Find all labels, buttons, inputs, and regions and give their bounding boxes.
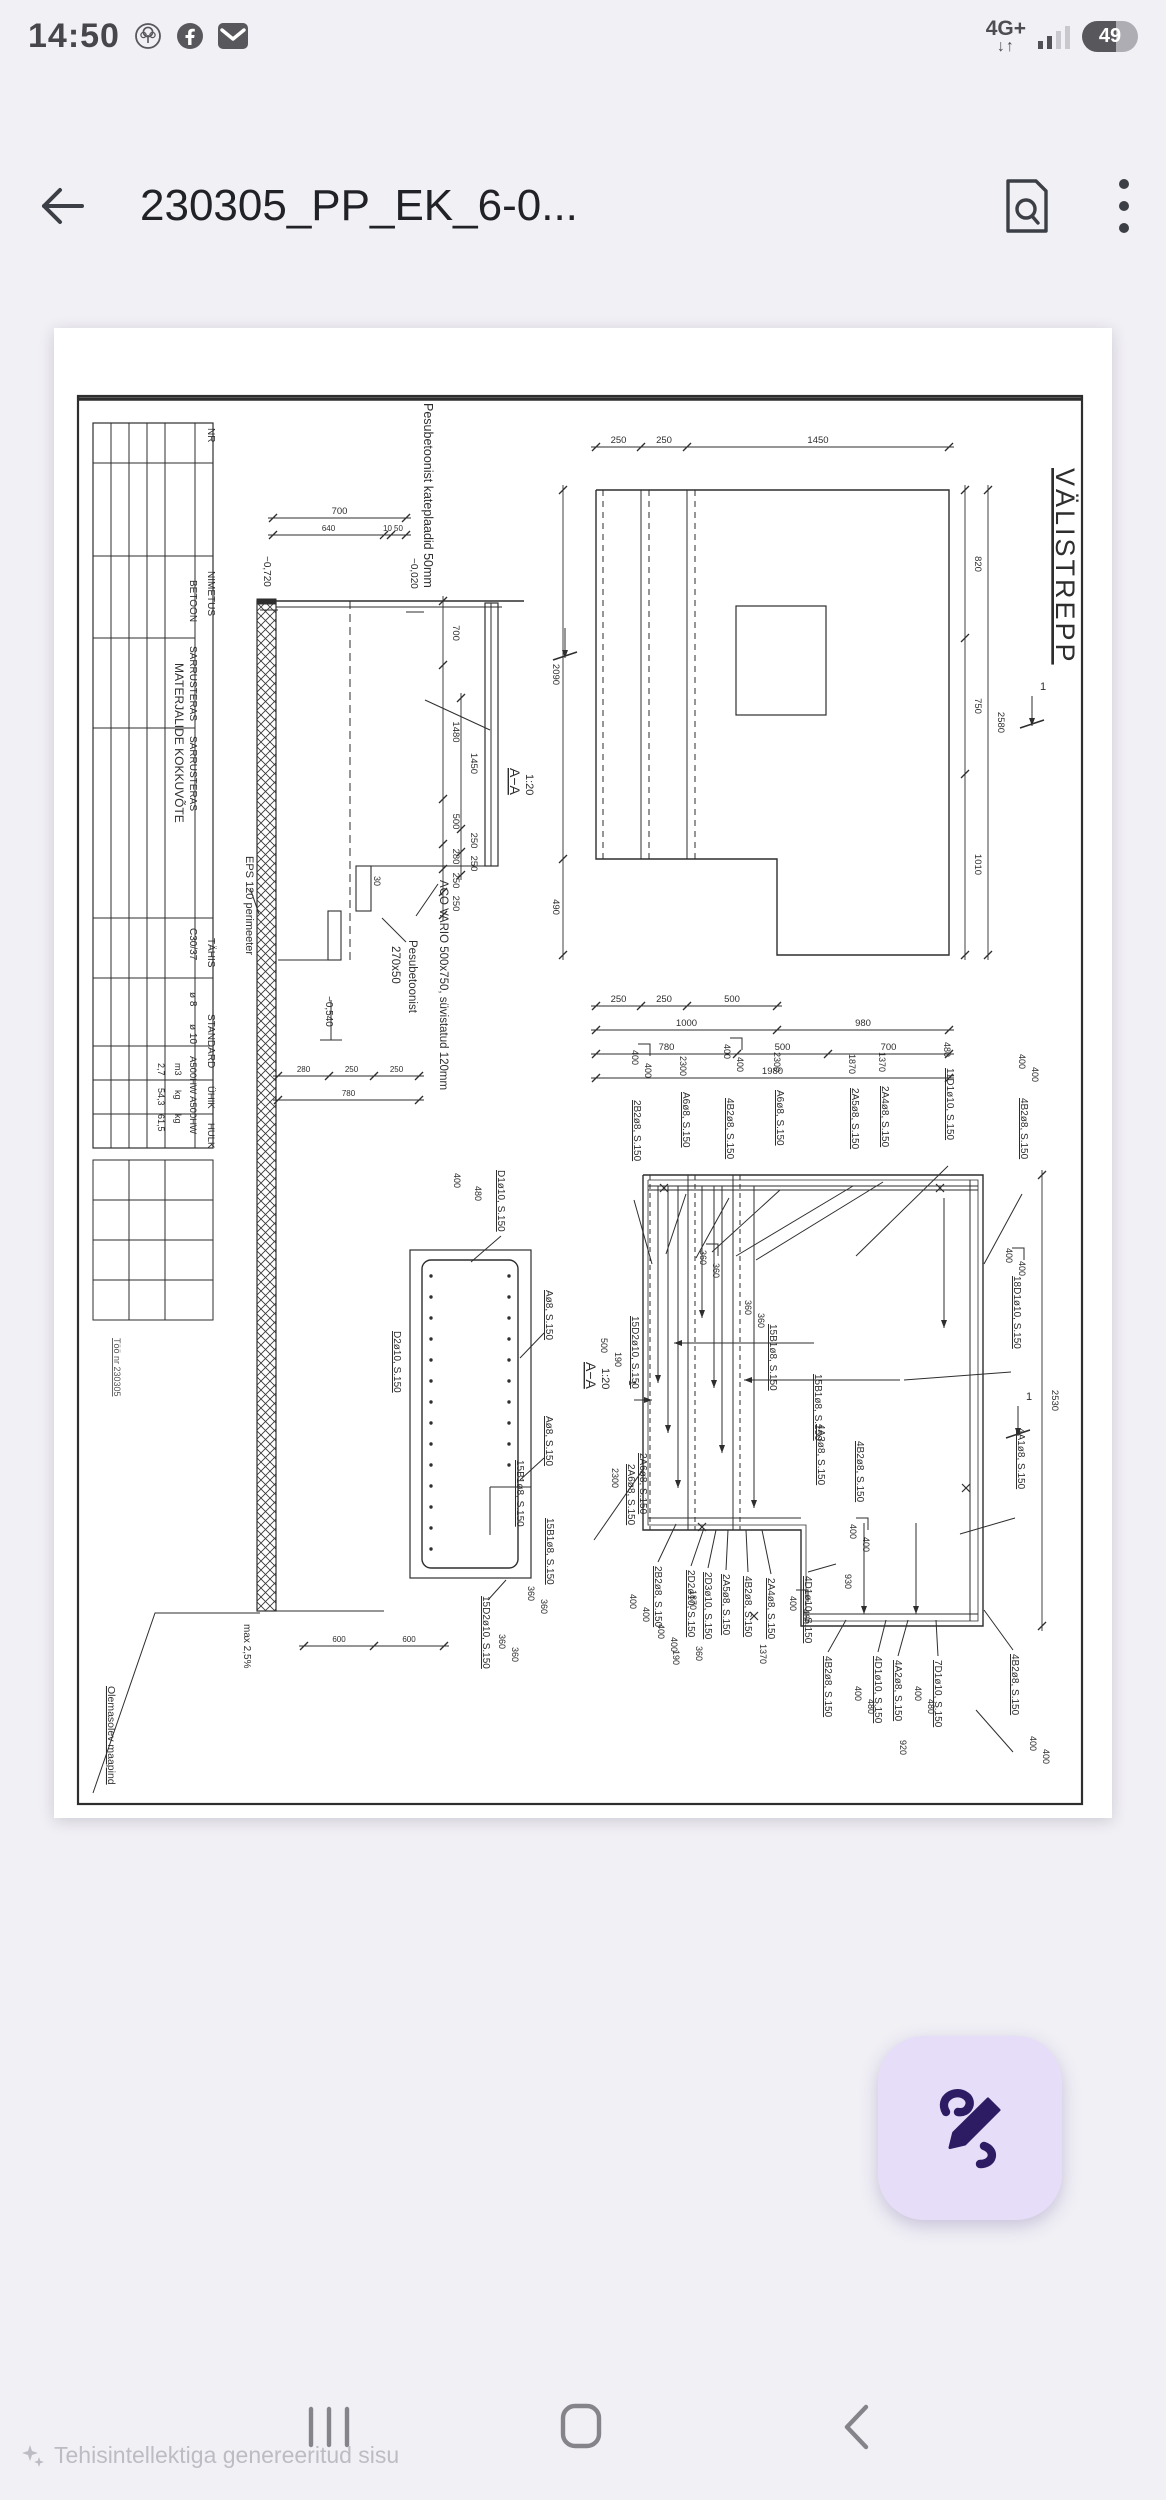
svg-text:190: 190	[671, 1650, 681, 1665]
svg-text:1370: 1370	[877, 1052, 887, 1072]
svg-text:400: 400	[641, 1607, 651, 1622]
svg-text:−0,720: −0,720	[261, 556, 272, 587]
svg-text:D1ø10, S.150: D1ø10, S.150	[495, 1170, 506, 1232]
drawing-sheet: 2502501450250250500100098078050070019808…	[54, 328, 1112, 1818]
svg-text:360: 360	[698, 1250, 708, 1265]
svg-text:270x50: 270x50	[389, 946, 401, 984]
svg-text:A500HW: A500HW	[187, 1096, 198, 1134]
svg-text:400: 400	[913, 1686, 923, 1701]
ai-edit-fab[interactable]	[878, 2036, 1062, 2220]
svg-text:250: 250	[611, 994, 627, 1005]
svg-text:780: 780	[659, 1042, 675, 1053]
svg-text:1:20: 1:20	[523, 774, 535, 795]
svg-text:780: 780	[342, 1089, 356, 1098]
svg-text:750: 750	[972, 698, 983, 714]
svg-text:190: 190	[613, 1352, 623, 1367]
status-bar: 14:50 4G+ ↓↑ 49	[0, 0, 1166, 72]
battery-indicator: 49	[1082, 21, 1138, 52]
svg-text:360: 360	[711, 1263, 721, 1278]
svg-text:7D1ø10, S.150: 7D1ø10, S.150	[932, 1660, 943, 1728]
svg-text:2B2ø8, S.150: 2B2ø8, S.150	[631, 1100, 642, 1162]
svg-text:61,5: 61,5	[156, 1114, 166, 1132]
svg-text:700: 700	[450, 625, 461, 641]
svg-text:−0,020: −0,020	[408, 558, 419, 589]
svg-text:NR: NR	[205, 428, 216, 442]
facebook-icon	[176, 22, 204, 50]
svg-text:Aø8, S.150: Aø8, S.150	[543, 1290, 554, 1340]
svg-text:250: 250	[656, 994, 672, 1005]
status-time: 14:50	[28, 17, 120, 56]
svg-text:2D3ø10, S.150: 2D3ø10, S.150	[702, 1572, 713, 1640]
svg-text:500: 500	[450, 814, 461, 830]
svg-text:280: 280	[450, 849, 461, 865]
gmail-icon	[218, 23, 248, 49]
svg-text:SARRUSTERAS: SARRUSTERAS	[187, 646, 198, 721]
svg-text:250: 250	[468, 833, 479, 849]
app-bar: 230305_PP_EK_6-0...	[0, 150, 1166, 262]
svg-text:EPS 120 perimeeter: EPS 120 perimeeter	[243, 856, 255, 955]
svg-text:640: 640	[322, 524, 336, 533]
svg-text:2A5ø8, S.150: 2A5ø8, S.150	[720, 1574, 731, 1636]
back-arrow-icon[interactable]	[36, 184, 88, 228]
svg-text:1: 1	[1040, 681, 1046, 693]
ai-watermark-text: Tehisintellektiga genereeritud sisu	[54, 2442, 399, 2469]
svg-text:400: 400	[1004, 1248, 1014, 1263]
svg-text:820: 820	[972, 556, 983, 572]
svg-text:490: 490	[550, 899, 561, 915]
svg-text:2A6ø8, S.150: 2A6ø8, S.150	[637, 1453, 648, 1515]
svg-text:400: 400	[788, 1596, 798, 1611]
svg-text:600: 600	[402, 1635, 416, 1644]
svg-text:480: 480	[473, 1186, 483, 1201]
svg-text:C30/37: C30/37	[187, 928, 198, 961]
tree-logo-icon	[134, 22, 162, 50]
svg-text:30: 30	[372, 876, 382, 886]
svg-text:A6ø8, S.150: A6ø8, S.150	[774, 1090, 785, 1146]
svg-text:TÄHIS: TÄHIS	[205, 938, 217, 968]
svg-text:2300: 2300	[678, 1056, 688, 1076]
svg-text:2300: 2300	[772, 1052, 782, 1072]
svg-text:kg: kg	[173, 1090, 183, 1100]
svg-text:1000: 1000	[676, 1018, 697, 1029]
svg-text:4B2ø8, S.150: 4B2ø8, S.150	[854, 1441, 865, 1503]
svg-text:ÜHIK: ÜHIK	[205, 1086, 216, 1109]
svg-text:400: 400	[861, 1537, 871, 1552]
svg-text:4A3ø8, S.150: 4A3ø8, S.150	[815, 1424, 826, 1486]
svg-text:400: 400	[1041, 1749, 1051, 1764]
svg-text:1:20: 1:20	[599, 1368, 611, 1389]
svg-text:54,3: 54,3	[156, 1088, 166, 1106]
svg-text:2580: 2580	[995, 712, 1006, 733]
svg-text:15D2ø10, S.150: 15D2ø10, S.150	[629, 1316, 640, 1389]
svg-text:360: 360	[539, 1599, 549, 1614]
svg-text:250: 250	[450, 873, 461, 889]
svg-text:max 2,5%: max 2,5%	[241, 1624, 252, 1669]
svg-text:15B1ø8, S.150: 15B1ø8, S.150	[544, 1518, 555, 1585]
svg-text:280: 280	[297, 1065, 311, 1074]
svg-text:360: 360	[694, 1646, 704, 1661]
svg-text:2A4ø8, S.150: 2A4ø8, S.150	[765, 1578, 776, 1640]
svg-text:15B1ø8, S.150: 15B1ø8, S.150	[514, 1460, 525, 1527]
svg-text:400: 400	[735, 1057, 745, 1072]
svg-text:500: 500	[724, 994, 740, 1005]
svg-text:Pesubetoonist: Pesubetoonist	[406, 940, 418, 1014]
svg-text:ø 8: ø 8	[187, 992, 198, 1007]
svg-text:2A5ø8, S.150: 2A5ø8, S.150	[849, 1088, 860, 1150]
svg-text:250: 250	[450, 896, 461, 912]
svg-text:SARRUSTERAS: SARRUSTERAS	[187, 736, 198, 811]
svg-text:400: 400	[1030, 1067, 1040, 1082]
svg-text:1870: 1870	[688, 1590, 698, 1610]
svg-text:A500HW: A500HW	[187, 1056, 198, 1094]
svg-text:D2ø10, S.150: D2ø10, S.150	[391, 1331, 402, 1393]
svg-text:2300: 2300	[610, 1468, 620, 1488]
svg-text:NIMETUS: NIMETUS	[205, 571, 216, 616]
network-indicator: 4G+ ↓↑	[986, 18, 1026, 55]
svg-text:4A2ø8, S.150: 4A2ø8, S.150	[892, 1660, 903, 1722]
svg-text:1480: 1480	[450, 721, 461, 742]
svg-text:Aø8, S.150: Aø8, S.150	[543, 1416, 554, 1466]
svg-text:250: 250	[468, 856, 479, 872]
svg-text:2A4ø8, S.150: 2A4ø8, S.150	[879, 1086, 890, 1148]
svg-text:1370: 1370	[758, 1644, 768, 1664]
svg-text:11D1ø10, S.150: 11D1ø10, S.150	[944, 1068, 955, 1141]
svg-text:360: 360	[497, 1634, 507, 1649]
svg-text:HULK: HULK	[205, 1123, 216, 1149]
svg-text:1010: 1010	[972, 854, 983, 875]
svg-text:kg: kg	[173, 1114, 183, 1124]
svg-text:360: 360	[756, 1313, 766, 1328]
svg-text:A−A: A−A	[507, 768, 523, 796]
svg-text:BETOON: BETOON	[187, 580, 198, 622]
svg-text:480: 480	[942, 1042, 952, 1057]
svg-text:4A1ø8, S.150: 4A1ø8, S.150	[1015, 1428, 1026, 1490]
svg-text:920: 920	[898, 1740, 908, 1755]
svg-text:2,7: 2,7	[156, 1063, 166, 1076]
svg-text:700: 700	[332, 506, 348, 517]
svg-text:1450: 1450	[468, 753, 479, 774]
home-button[interactable]	[558, 2402, 604, 2450]
svg-text:2A6ø8, S.150: 2A6ø8, S.150	[625, 1464, 636, 1526]
svg-text:400: 400	[643, 1063, 653, 1078]
svg-text:A6ø8, S.150: A6ø8, S.150	[680, 1092, 691, 1148]
svg-text:400: 400	[656, 1624, 666, 1639]
svg-text:400: 400	[848, 1524, 858, 1539]
signal-bars-icon	[1038, 23, 1072, 49]
pdf-page[interactable]: 2502501450250250500100098078050070019808…	[54, 328, 1112, 1818]
svg-text:1450: 1450	[807, 435, 828, 446]
svg-text:MATERJALIDE KOKKUVÕTE: MATERJALIDE KOKKUVÕTE	[172, 663, 187, 823]
svg-text:980: 980	[855, 1018, 871, 1029]
svg-text:2B2ø8, S.150: 2B2ø8, S.150	[652, 1566, 663, 1628]
svg-text:1: 1	[1026, 1391, 1032, 1403]
svg-text:4B2ø8, S.150: 4B2ø8, S.150	[742, 1576, 753, 1638]
document-title: 230305_PP_EK_6-0...	[140, 181, 1002, 231]
svg-text:Olemasolev maapind: Olemasolev maapind	[105, 1686, 117, 1785]
svg-text:50: 50	[394, 524, 403, 533]
svg-text:4B2ø8, S.150: 4B2ø8, S.150	[1018, 1098, 1029, 1160]
svg-text:400: 400	[628, 1594, 638, 1609]
svg-text:2530: 2530	[1049, 1390, 1060, 1411]
svg-text:400: 400	[1017, 1261, 1027, 1276]
svg-text:−0,540: −0,540	[323, 996, 334, 1027]
svg-text:18D1ø10, S.150: 18D1ø10, S.150	[1011, 1276, 1022, 1349]
svg-text:15D2ø10, S.150: 15D2ø10, S.150	[480, 1596, 491, 1669]
svg-text:400: 400	[630, 1050, 640, 1065]
svg-text:m3: m3	[173, 1063, 183, 1076]
svg-text:360: 360	[526, 1586, 536, 1601]
svg-text:400: 400	[669, 1637, 679, 1652]
svg-text:VÄLISTREPP: VÄLISTREPP	[1050, 468, 1080, 665]
svg-text:500: 500	[599, 1338, 609, 1353]
overflow-menu-icon[interactable]	[1118, 176, 1130, 236]
svg-text:4D1ø10, S.150: 4D1ø10, S.150	[872, 1656, 883, 1724]
svg-text:4B2ø8, S.150: 4B2ø8, S.150	[724, 1098, 735, 1160]
svg-text:250: 250	[390, 1065, 404, 1074]
search-in-document-icon[interactable]	[1002, 177, 1052, 235]
svg-text:250: 250	[345, 1065, 359, 1074]
svg-text:360: 360	[510, 1647, 520, 1662]
svg-text:10: 10	[383, 524, 392, 533]
ai-watermark: Tehisintellektiga genereeritud sisu	[20, 2442, 399, 2469]
ai-pen-icon	[922, 2080, 1018, 2176]
svg-text:4B2ø8, S.150: 4B2ø8, S.150	[822, 1656, 833, 1718]
svg-text:ø 10: ø 10	[187, 1024, 198, 1044]
svg-text:A−A: A−A	[583, 1362, 599, 1390]
svg-text:ACO VARIO 500x750, süvistatud: ACO VARIO 500x750, süvistatud 120mm	[437, 880, 449, 1090]
svg-text:STANDARD: STANDARD	[205, 1014, 216, 1068]
svg-text:250: 250	[611, 435, 627, 446]
back-button[interactable]	[842, 2404, 870, 2450]
svg-text:930: 930	[843, 1574, 853, 1589]
phone-screen: { "status_bar": { "time": "14:50", "netw…	[0, 0, 1166, 2500]
svg-text:Pesubetoonist kateplaadid 50mm: Pesubetoonist kateplaadid 50mm	[421, 403, 435, 588]
svg-text:400: 400	[1017, 1054, 1027, 1069]
svg-text:Töö nr 230305: Töö nr 230305	[112, 1338, 122, 1397]
svg-text:400: 400	[853, 1686, 863, 1701]
svg-text:1870: 1870	[847, 1054, 857, 1074]
sparkle-icon	[20, 2443, 46, 2469]
svg-text:400: 400	[452, 1173, 462, 1188]
svg-text:15B1ø8, S.150: 15B1ø8, S.150	[767, 1324, 778, 1391]
svg-text:250: 250	[656, 435, 672, 446]
svg-text:400: 400	[722, 1044, 732, 1059]
svg-text:2090: 2090	[550, 664, 561, 685]
svg-text:4D1ø10, S.150: 4D1ø10, S.150	[802, 1576, 813, 1644]
svg-text:600: 600	[332, 1635, 346, 1644]
battery-percent: 49	[1082, 21, 1138, 52]
svg-text:4B2ø8, S.150: 4B2ø8, S.150	[1009, 1654, 1020, 1716]
svg-text:400: 400	[1028, 1736, 1038, 1751]
svg-text:360: 360	[743, 1300, 753, 1315]
